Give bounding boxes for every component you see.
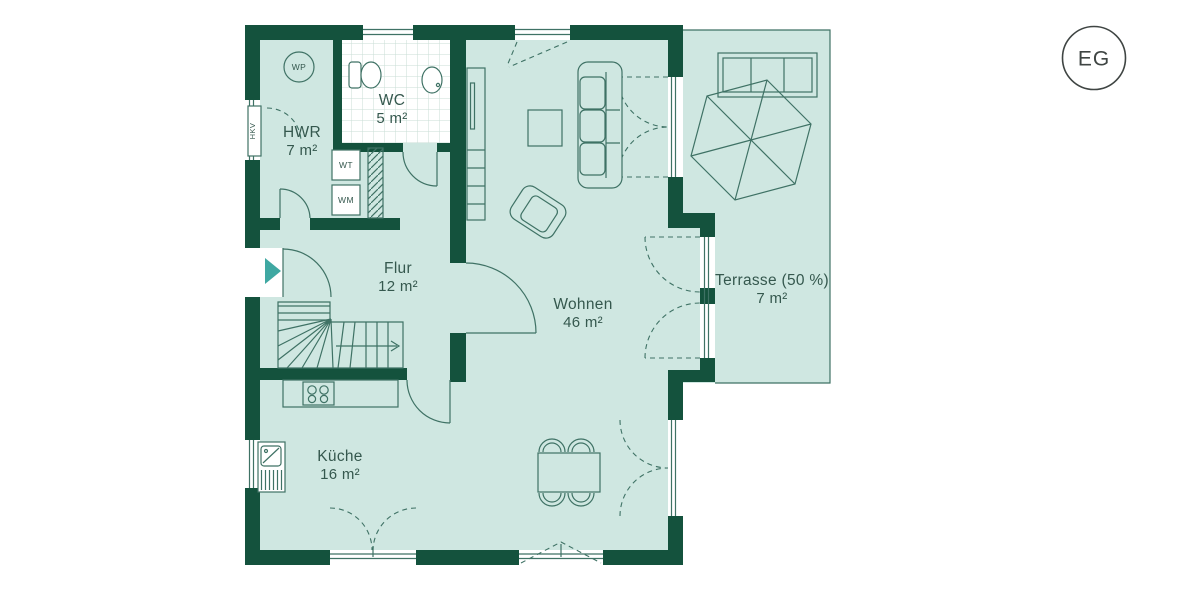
room-label-kueche: Küche [317, 448, 362, 465]
dryer-label: WT [339, 160, 353, 170]
floor-badge: EG [1063, 27, 1126, 90]
cooktop [303, 382, 334, 405]
room-area-kueche: 16 m² [320, 466, 360, 483]
floor-plan-page: HWR 7 m² WC 5 m² Flur 12 m² Wohnen 46 m²… [0, 0, 1200, 600]
sofa [578, 62, 622, 188]
room-label-terrasse: Terrasse (50 %) [715, 272, 829, 289]
heating-circuit-label: HKV [248, 123, 257, 140]
room-area-flur: 12 m² [378, 278, 418, 295]
floor-badge-label: EG [1078, 48, 1110, 71]
room-area-terrasse: 7 m² [756, 290, 787, 307]
room-label-wohnen: Wohnen [553, 296, 612, 313]
heat-pump-label: WP [292, 62, 307, 72]
washer-label: WM [338, 195, 354, 205]
room-label-flur: Flur [384, 260, 412, 277]
room-area-hwr: 7 m² [286, 142, 317, 159]
room-area-wc: 5 m² [376, 110, 407, 127]
tall-cabinet [467, 68, 485, 220]
toilet [349, 62, 381, 88]
room-label-wc: WC [379, 92, 405, 109]
coffee-table [528, 110, 562, 146]
kitchen-sink [258, 442, 285, 492]
floor-plan-drawing: HWR 7 m² WC 5 m² Flur 12 m² Wohnen 46 m²… [0, 0, 1200, 600]
wc-sink [422, 67, 442, 93]
room-area-wohnen: 46 m² [563, 314, 603, 331]
dining-table [538, 453, 600, 492]
kitchen-counter [283, 380, 398, 407]
window-wc-top [363, 25, 413, 40]
room-label-hwr: HWR [283, 124, 321, 141]
shaft-hatched [368, 148, 383, 218]
